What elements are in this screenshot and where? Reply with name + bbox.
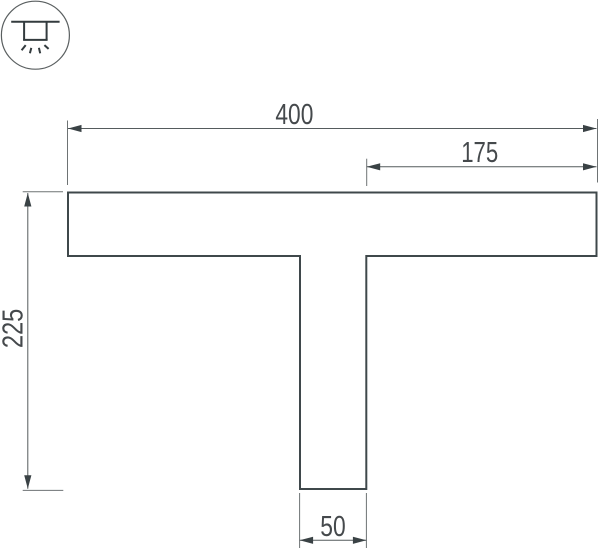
svg-text:50: 50 bbox=[320, 511, 345, 543]
svg-text:400: 400 bbox=[275, 99, 313, 131]
svg-text:225: 225 bbox=[0, 309, 30, 349]
svg-text:175: 175 bbox=[461, 137, 498, 169]
